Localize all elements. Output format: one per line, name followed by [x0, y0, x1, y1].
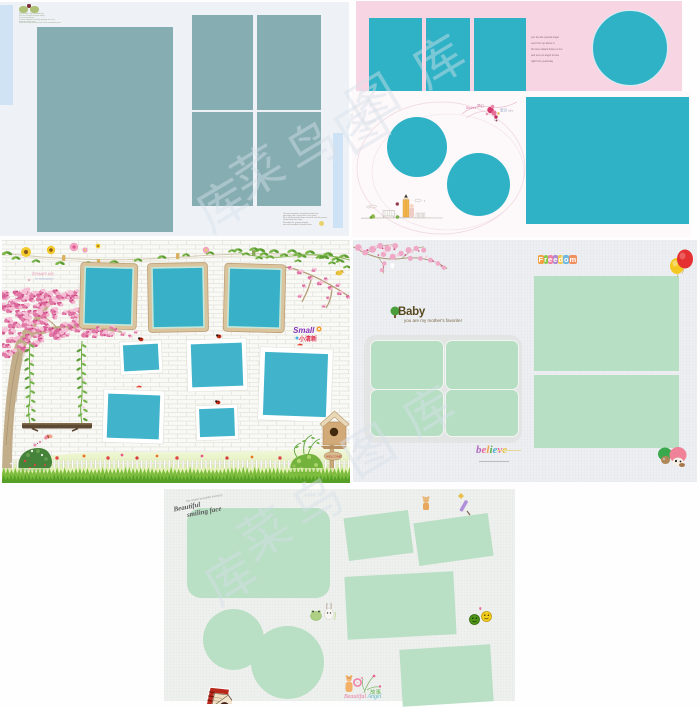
svg-text:小清新: 小清新	[298, 335, 317, 343]
svg-text:Sweet: Sweet	[466, 105, 477, 110]
svg-text:the spring garden: the spring garden	[35, 278, 54, 281]
svg-text:宝贝: 宝贝	[500, 108, 508, 113]
svg-text:Small: Small	[293, 326, 315, 335]
svg-text:花开的季节 春天: 花开的季节 春天	[32, 271, 54, 276]
svg-text:WELCOME: WELCOME	[326, 455, 342, 459]
svg-text:baby: baby	[508, 110, 514, 113]
svg-text:梦幻: 梦幻	[477, 103, 484, 108]
